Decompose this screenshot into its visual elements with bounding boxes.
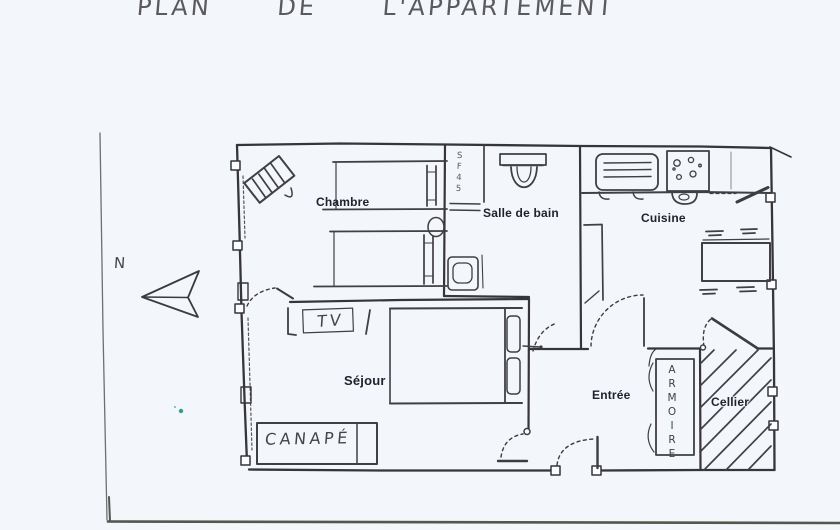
door-sejour-entree (498, 429, 530, 462)
radiator-icon (244, 156, 294, 203)
sofa-label: CANAPÉ (264, 428, 351, 449)
door-cellier (701, 319, 758, 351)
kitchen-sink-icon (672, 193, 697, 204)
tv-label: TV (316, 310, 344, 331)
kitchen-table-icon (700, 229, 770, 294)
scanned-floor-plan-page: PLAN DE L'APPARTEMENT N Chambre Salle de… (0, 0, 840, 530)
room-label-cuisine: Cuisine (641, 211, 686, 225)
toilet-icon (500, 154, 546, 187)
door-kitchen (591, 295, 644, 346)
floor-plan-drawing (0, 0, 840, 530)
door-kitchen-balcony (710, 152, 768, 202)
room-label-salle-de-bain: Salle de bain (483, 206, 559, 220)
cellier-hatching (700, 350, 771, 470)
door-chambre (247, 288, 293, 306)
green-speck (174, 406, 183, 413)
scan-edge (108, 497, 840, 523)
interior-walls (290, 145, 772, 471)
room-label-sejour: Séjour (344, 373, 386, 388)
cooktop-icon (667, 151, 709, 191)
door-front-entrance (557, 437, 598, 468)
wardrobe-label: ARMOIRE (666, 364, 678, 456)
room-label-chambre: Chambre (316, 195, 369, 209)
bathroom-note-label: SF45 (453, 151, 465, 197)
page-margin-line (100, 133, 107, 520)
room-label-cellier: Cellier (711, 395, 749, 409)
room-label-entree: Entrée (592, 388, 631, 402)
bed-single-2-icon (314, 218, 447, 287)
sink-icon (448, 255, 483, 290)
double-bed-icon (390, 308, 543, 404)
compass-north-label: N (113, 254, 125, 272)
kitchen-counter (582, 192, 771, 303)
page-title: PLAN DE L'APPARTEMENT (136, 0, 616, 19)
compass-arrow (142, 271, 199, 317)
